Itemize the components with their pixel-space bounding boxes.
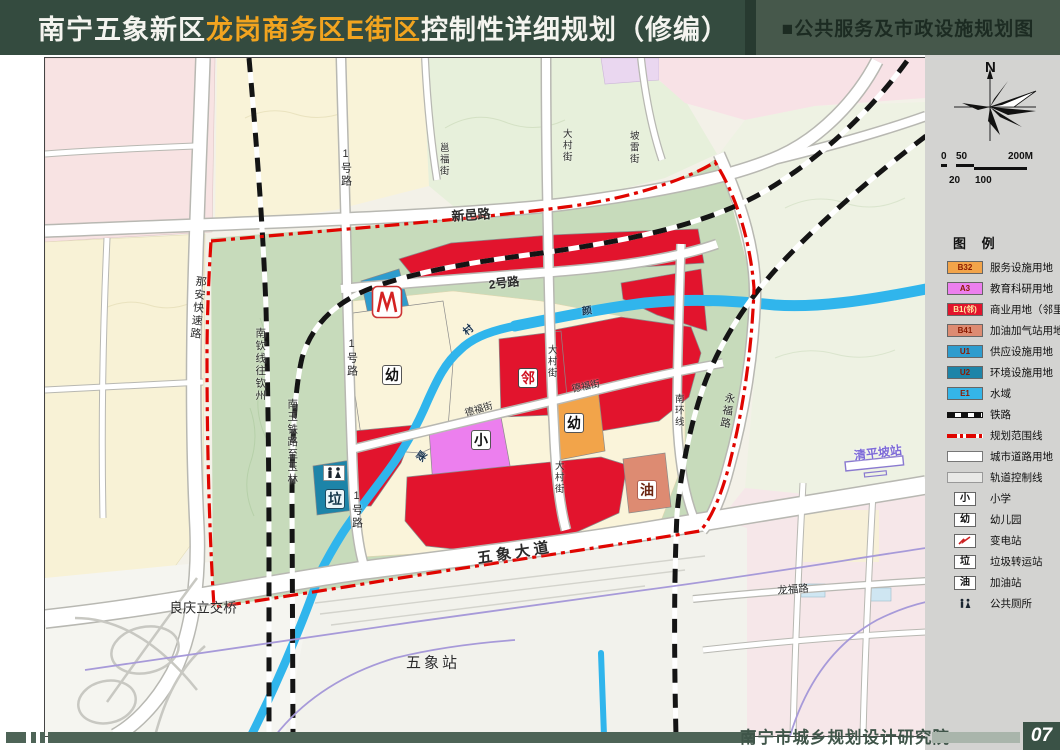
legend-label: 城市道路用地 (990, 449, 1053, 464)
header-bar: 南宁五象新区龙岗商务区E街区控制性详细规划（修编） ■公共服务及市政设施规划图 (0, 0, 1060, 55)
scale-tick: 0 (941, 151, 947, 162)
north-compass: N (945, 59, 1041, 151)
kindergarten-badge: 幼 (382, 365, 402, 385)
footer-light-block (932, 732, 1020, 743)
scale-tick: 100 (975, 175, 992, 186)
title-part-3: 控制性详细规划（修编） (421, 8, 729, 47)
gas-station-badge: 油 (637, 480, 657, 500)
label-liangqing-interchange: 良庆立交桥 (169, 601, 237, 615)
label-dacun-street: 大村街 (553, 461, 563, 496)
label-road-1: 1号路 (351, 490, 362, 530)
public-toilet-legend-icon (954, 597, 976, 611)
legend-swatch: B41 (947, 324, 983, 337)
legend-swatch: A3 (947, 282, 983, 295)
legend-label: 加油加气站用地 (990, 323, 1060, 338)
legend-row: U2 环境设施用地 (947, 362, 1057, 383)
legend-label: 轨道控制线 (990, 470, 1043, 485)
label-nanqin-railway: 南钦线往钦州 (255, 328, 266, 403)
label-dacun-street: 大村街 (546, 345, 556, 380)
substation-legend-icon (954, 534, 976, 548)
scale-tick: 50 (956, 151, 967, 162)
label-road-1: 1号路 (346, 338, 357, 378)
page-number: 07 (1023, 722, 1060, 750)
label-creek-yan: 颜 (581, 306, 592, 317)
parcel-cream-top (215, 58, 429, 228)
scale-tick: 20 (949, 175, 960, 186)
legend-row: B32 服务设施用地 (947, 257, 1057, 278)
legend-swatch: B1(邻) (947, 303, 983, 316)
legend-label: 服务设施用地 (990, 260, 1053, 275)
label-road-2: 2号路 (488, 275, 520, 291)
sheet-subtitle: ■公共服务及市政设施规划图 (782, 14, 1034, 41)
title-part-1: 南宁五象新区 (38, 8, 206, 47)
legend-swatch: E1 (947, 387, 983, 400)
legend-row: U1 供应设施用地 (947, 341, 1057, 362)
legend-swatch: U2 (947, 366, 983, 379)
primary-school-legend-icon: 小 (954, 492, 976, 506)
label-polei-street: 坡雷街 (628, 131, 638, 166)
legend-row: B41 加油加气站用地 (947, 320, 1057, 341)
footer-block (6, 732, 26, 743)
legend-row: 油 加油站 (947, 572, 1057, 593)
gas-legend-icon: 油 (954, 576, 976, 590)
legend-row: 垃 垃圾转运站 (947, 551, 1057, 572)
label-road-1: 1号路 (340, 148, 351, 188)
label-nanyu-railway: 南玉铁路至玉林 (287, 398, 298, 486)
garbage-legend-icon: 垃 (954, 555, 976, 569)
label-wuxiang-station: 五象站 (406, 656, 460, 671)
legend-label: 幼儿园 (990, 512, 1022, 527)
legend-swatch: U1 (947, 345, 983, 358)
scale-tick: 200M (1008, 151, 1033, 162)
legend-label: 小学 (990, 491, 1011, 506)
legend-label: 教育科研用地 (990, 281, 1053, 296)
scale-bar-graphic (941, 164, 1027, 168)
label-nanhuan-line: 南环线 (673, 394, 683, 429)
primary-school-badge: 小 (471, 430, 491, 450)
footer-bar (48, 732, 755, 743)
legend-row: 小 小学 (947, 488, 1057, 509)
public-toilet-icon (323, 465, 345, 481)
legend-label: 铁路 (990, 407, 1011, 422)
legend-row: E1 水域 (947, 383, 1057, 404)
plan-sheet: 南宁五象新区龙岗商务区E街区控制性详细规划（修编） ■公共服务及市政设施规划图 (0, 0, 1060, 750)
legend-row: 幼 幼儿园 (947, 509, 1057, 530)
legend-title: 图 例 (953, 233, 1001, 252)
legend-row: 公共厕所 (947, 593, 1057, 614)
footer-block (31, 732, 36, 743)
label-yongfu-street: 邕福街 (438, 143, 448, 178)
sidebar-panel: N 0 50 200M (925, 55, 1060, 750)
label-xinyi-road: 新邑路 (451, 207, 491, 223)
road-legend-icon (947, 450, 983, 463)
title-part-2: 龙岗商务区E街区 (206, 8, 421, 47)
north-label: N (985, 59, 996, 76)
parcel-lavender-topright (601, 58, 659, 84)
legend-row: 规划范围线 (947, 425, 1057, 446)
railway-legend-icon (947, 408, 983, 421)
header-subtitle-panel: ■公共服务及市政设施规划图 (756, 0, 1060, 55)
legend-row: A3 教育科研用地 (947, 278, 1057, 299)
legend: B32 服务设施用地 A3 教育科研用地 B1(邻) 商业用地（邻里中心） B4… (947, 257, 1057, 614)
legend-label: 公共厕所 (990, 596, 1032, 611)
rail-control-legend-icon (947, 471, 983, 484)
legend-label: 商业用地（邻里中心） (990, 302, 1060, 317)
footer-block (40, 732, 45, 743)
legend-row: 变电站 (947, 530, 1057, 551)
scale-bar: 0 50 200M 20 100 (941, 151, 1033, 189)
garbage-station-badge: 垃 (325, 489, 345, 509)
institute-name: 南宁市城乡规划设计研究院 (762, 724, 928, 748)
label-dacun-street: 大村街 (561, 129, 571, 164)
legend-swatch: B32 (947, 261, 983, 274)
legend-label: 变电站 (990, 533, 1022, 548)
substation-icon (371, 285, 403, 319)
label-longfu-road: 龙福路 (777, 584, 809, 597)
legend-row: 城市道路用地 (947, 446, 1057, 467)
legend-row: B1(邻) 商业用地（邻里中心） (947, 299, 1057, 320)
legend-label: 供应设施用地 (990, 344, 1053, 359)
neighborhood-center-badge: 邻 (518, 368, 538, 388)
planning-map: 新邑路 那安快速路 1号路 1号路 1号路 2号路 邕福街 坡雷街 大村街 大村… (44, 57, 927, 737)
legend-row: 铁路 (947, 404, 1057, 425)
parcel-cream-left (45, 234, 205, 598)
header-divider (745, 0, 756, 55)
kindergarten-legend-icon: 幼 (954, 513, 976, 527)
boundary-legend-icon (947, 429, 983, 442)
legend-label: 水域 (990, 386, 1011, 401)
legend-label: 加油站 (990, 575, 1022, 590)
map-canvas (45, 58, 926, 736)
legend-label: 规划范围线 (990, 428, 1043, 443)
legend-row: 轨道控制线 (947, 467, 1057, 488)
legend-label: 环境设施用地 (990, 365, 1053, 380)
kindergarten-badge: 幼 (564, 413, 584, 433)
legend-label: 垃圾转运站 (990, 554, 1043, 569)
sheet-title: 南宁五象新区龙岗商务区E街区控制性详细规划（修编） (38, 0, 729, 55)
